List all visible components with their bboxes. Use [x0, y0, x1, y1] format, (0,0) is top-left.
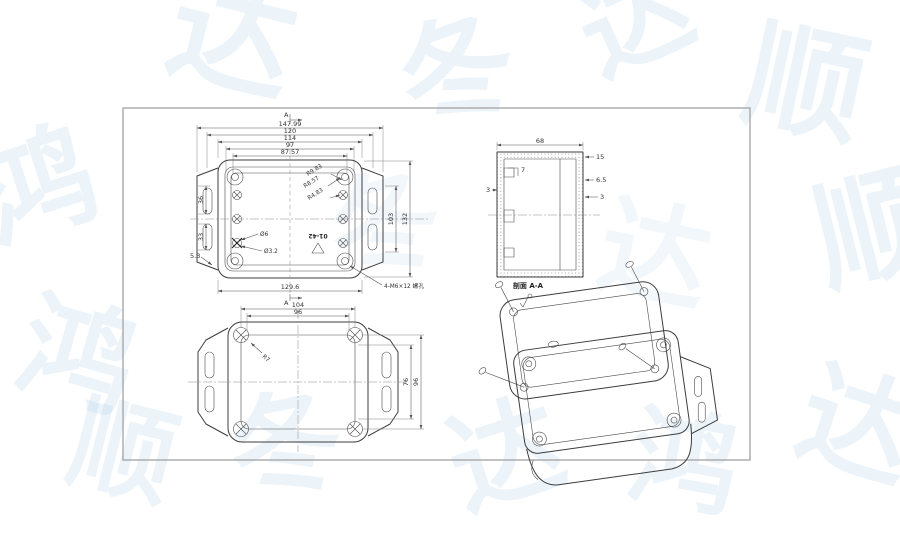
- dim-label: 96: [412, 378, 420, 386]
- radius-label: R4.83: [307, 187, 325, 201]
- iso-box: [511, 320, 723, 489]
- radius-callouts: R9.83 R8.57 R4.83: [303, 163, 342, 201]
- dim-label: 5.3: [190, 252, 200, 260]
- dim-label: 15: [596, 153, 604, 161]
- dimensions-left: 36 33 5.3: [190, 186, 212, 265]
- dim-label: 33: [197, 233, 205, 241]
- bottom-view: 104 96 76 96 R7: [188, 301, 424, 452]
- drawing-frame: [123, 108, 750, 460]
- hole-label: Ø6: [260, 231, 269, 238]
- radius-label: R7: [261, 354, 271, 364]
- dimension-bottom: 129.6: [218, 283, 362, 291]
- dim-label: 132: [401, 213, 409, 225]
- dim-label: 129.6: [281, 283, 300, 291]
- hole-label: Ø3.2: [264, 248, 278, 255]
- technical-drawing: A A 147.99 120 11: [0, 0, 900, 500]
- hole-callouts: Ø6 Ø3.2: [241, 231, 278, 255]
- dim-label: 87.57: [281, 148, 300, 156]
- dim-label: 103: [387, 213, 395, 225]
- radius-label: R9.83: [306, 163, 324, 177]
- top-view: A A 147.99 120 11: [190, 111, 430, 307]
- extension-lines: [197, 125, 413, 294]
- radius-label: R8.57: [303, 175, 321, 189]
- section-letter: A: [284, 111, 289, 119]
- iso-lid: [465, 257, 670, 405]
- iso-box-lower-body: [526, 424, 696, 489]
- dim-label: 3: [600, 193, 604, 201]
- isometric-view: [465, 257, 723, 489]
- dim-label: 96: [294, 308, 302, 316]
- section-letter: A: [284, 299, 289, 307]
- marking-text: 01-42: [308, 232, 327, 239]
- section-view: 68 15 6.5 3 7 3 剖面 A-A: [486, 137, 606, 307]
- thread-label: 4-M6×12 螺孔: [384, 282, 424, 290]
- surface-finish-icon: [520, 294, 532, 307]
- mold-marking: 01-42: [308, 232, 327, 253]
- dim-label: 3: [486, 186, 490, 194]
- section-caption: 剖面 A-A: [513, 281, 544, 290]
- dim-label: 36: [197, 196, 205, 204]
- dimensions-top: 147.99 120 114 97 87.57: [197, 120, 383, 156]
- iso-left-foot: [530, 460, 538, 480]
- dim-label: 68: [536, 137, 544, 145]
- dimensions-right: 103 132: [387, 161, 410, 277]
- dim-label: 76: [402, 378, 410, 386]
- recycle-icon: [312, 243, 324, 253]
- dim-label: 6.5: [596, 176, 606, 184]
- dim-label: 7: [521, 166, 525, 174]
